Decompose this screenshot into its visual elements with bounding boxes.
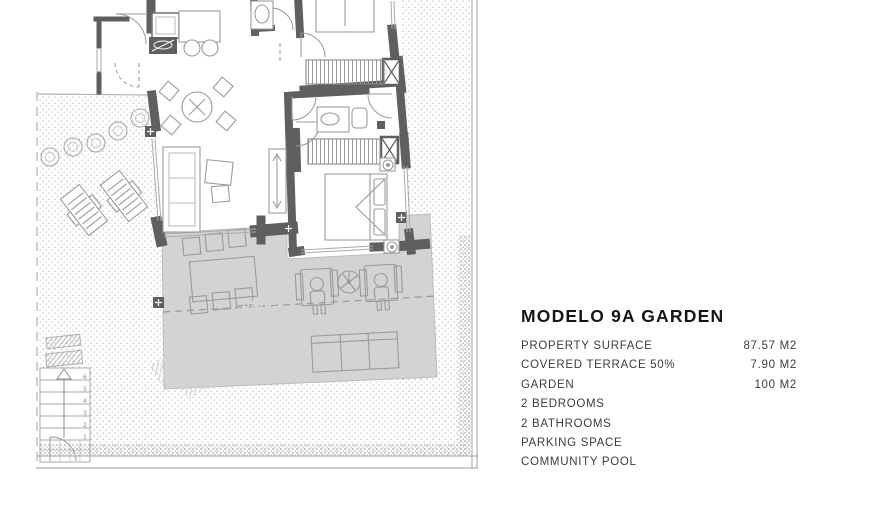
- floor-plan-svg: 6 5 4 3 2 1: [0, 0, 500, 504]
- coffee-table-icon: [211, 185, 229, 202]
- detail-label: GARDEN: [521, 376, 574, 395]
- sink-icon: [317, 107, 349, 132]
- property-details: PROPERTY SURFACE 87.57 M2 COVERED TERRAC…: [521, 337, 797, 473]
- garden-top-edge: [38, 94, 151, 95]
- coffee-table-icon: [205, 160, 233, 186]
- detail-row: COVERED TERRACE 50% 7.90 M2: [521, 356, 797, 375]
- detail-row: GARDEN 100 M2: [521, 376, 797, 395]
- svg-text:6: 6: [83, 374, 87, 381]
- shower-drain-icon: [377, 121, 385, 129]
- boundary-bottom-strip: [40, 444, 468, 456]
- detail-value: 87.57 M2: [743, 337, 797, 356]
- svg-text:3: 3: [83, 410, 87, 417]
- floor-plan: 6 5 4 3 2 1: [0, 0, 500, 504]
- wall-junction-icon: [283, 223, 294, 234]
- detail-row: PROPERTY SURFACE 87.57 M2: [521, 337, 797, 356]
- toilet-icon: [352, 108, 367, 128]
- detail-label: PROPERTY SURFACE: [521, 337, 653, 356]
- boundary-right-strip: [458, 235, 471, 455]
- page: { "window": { "background": "#ffffff" },…: [0, 0, 882, 504]
- detail-row: 2 BEDROOMS: [521, 395, 797, 414]
- detail-label: 2 BEDROOMS: [521, 395, 605, 414]
- nightstand-icon: [380, 158, 395, 171]
- wall-junction-icon: [396, 212, 407, 223]
- detail-label: PARKING SPACE: [521, 434, 622, 453]
- svg-text:5: 5: [83, 386, 87, 393]
- console-icon: [269, 149, 286, 213]
- kitchen-counter: [179, 11, 220, 42]
- wardrobe-icon: [308, 139, 380, 164]
- svg-text:4: 4: [83, 398, 87, 405]
- detail-label: 2 BATHROOMS: [521, 415, 612, 434]
- page-title: MODELO 9A GARDEN: [521, 306, 797, 327]
- svg-text:1: 1: [83, 434, 87, 441]
- kitchen: [149, 11, 220, 56]
- detail-row: COMMUNITY POOL: [521, 453, 797, 472]
- stool-icon: [202, 40, 218, 56]
- detail-value: 100 M2: [754, 376, 797, 395]
- wall-junction-icon: [145, 126, 156, 137]
- detail-label: COMMUNITY POOL: [521, 453, 637, 472]
- info-panel: MODELO 9A GARDEN PROPERTY SURFACE 87.57 …: [521, 306, 797, 473]
- wall-junction-icon: [153, 297, 164, 308]
- detail-row: PARKING SPACE: [521, 434, 797, 453]
- stool-icon: [184, 40, 200, 56]
- wardrobe-icon: [306, 60, 384, 84]
- bed-icon: [325, 174, 387, 240]
- shaft-x-icon: [383, 59, 400, 85]
- nightstand-icon: [384, 240, 399, 253]
- bathroom-1: [251, 1, 273, 29]
- svg-text:2: 2: [83, 422, 87, 429]
- detail-value: 7.90 M2: [751, 356, 797, 375]
- detail-row: 2 BATHROOMS: [521, 415, 797, 434]
- detail-label: COVERED TERRACE 50%: [521, 356, 675, 375]
- cooktop-icon: [149, 37, 177, 54]
